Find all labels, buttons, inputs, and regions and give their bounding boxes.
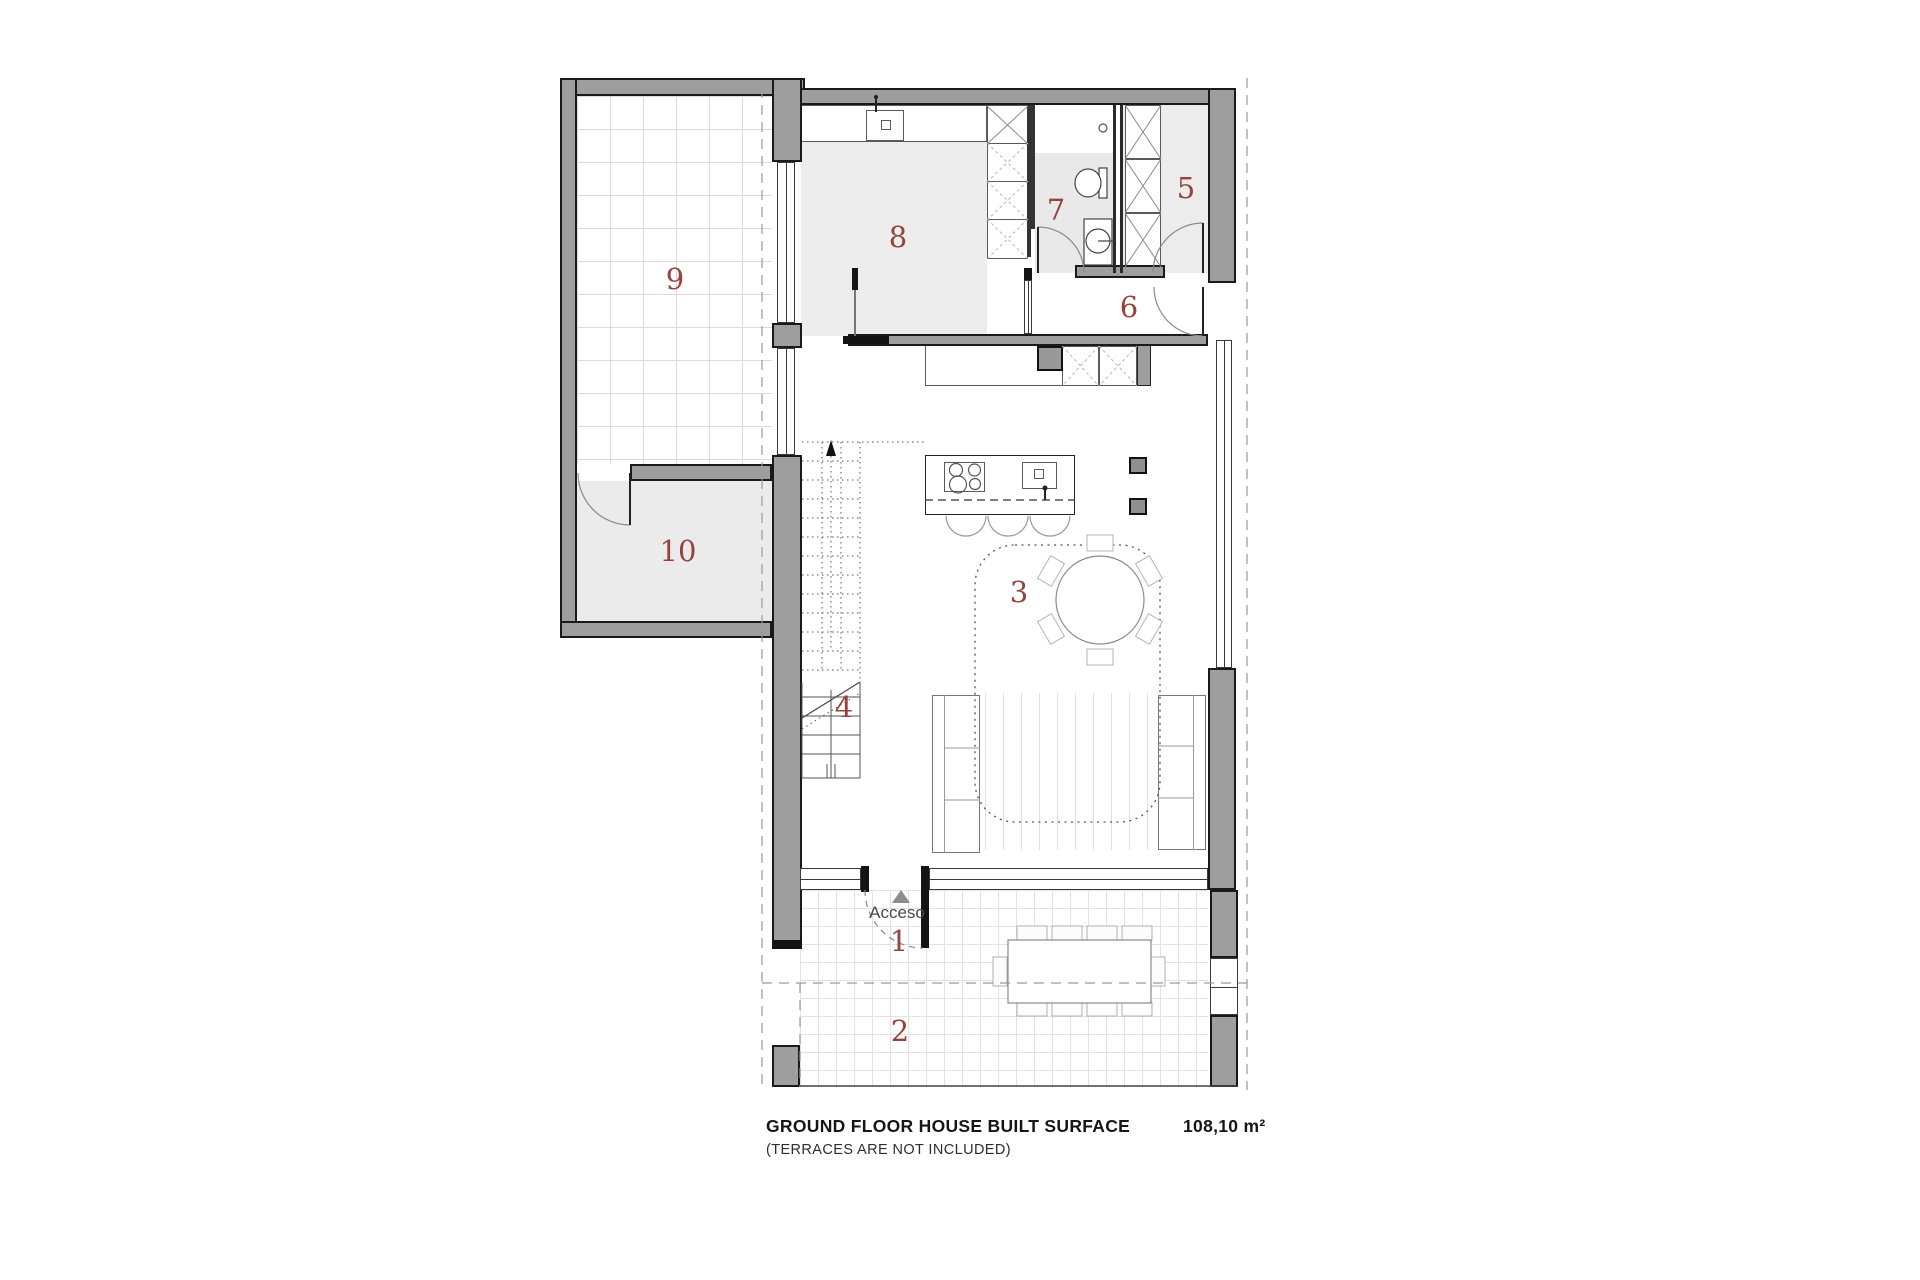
room-label-9: 9 [666,262,684,296]
caption-subtitle: (TERRACES ARE NOT INCLUDED) [766,1142,1011,1158]
room-label-8: 8 [889,220,907,254]
cabinet-x-marks [987,105,1161,386]
stairs-linework [802,440,925,778]
room-label-4: 4 [835,690,853,724]
sofa-cushion-lines [944,746,1193,800]
entrance-label: Acceso [869,903,925,923]
outdoor-dining-set [993,926,1165,1016]
bathroom-fixtures [1075,124,1114,265]
room-label-6: 6 [1120,290,1138,324]
caption-area-value: 108,10 m² [1183,1116,1265,1137]
room-label-3: 3 [1010,575,1028,609]
kitchen-fixtures [874,95,1075,536]
dashed-boundary-lines [762,78,1247,1090]
linework-layer [0,0,1920,1280]
room-label-1: 1 [890,924,908,958]
dining-table-set [1038,535,1163,665]
room-label-10: 10 [660,534,697,568]
room-label-7: 7 [1047,193,1065,227]
room-label-5: 5 [1177,171,1195,205]
room-label-2: 2 [891,1014,909,1048]
caption-title: GROUND FLOOR HOUSE BUILT SURFACE [766,1116,1130,1137]
floor-plan: 9 10 8 7 5 6 4 3 1 2 Acceso GROUND FLOOR… [0,0,1920,1280]
